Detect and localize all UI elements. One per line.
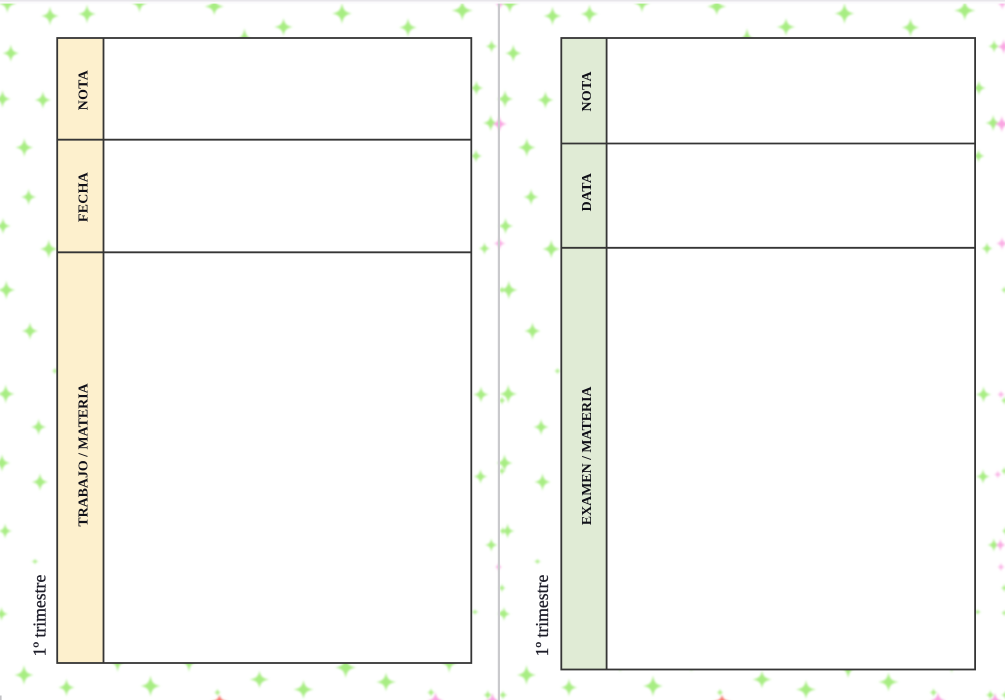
- svg-text:DATA: DATA: [580, 173, 595, 212]
- svg-text:1º trimestre: 1º trimestre: [29, 575, 49, 657]
- svg-text:FECHA: FECHA: [77, 172, 92, 222]
- svg-text:EXAMEN / MATERIA: EXAMEN / MATERIA: [580, 386, 595, 525]
- svg-text:NOTA: NOTA: [77, 70, 92, 110]
- svg-text:TRABAJO / MATERIA: TRABAJO / MATERIA: [77, 383, 92, 526]
- svg-text:1º trimestre: 1º trimestre: [532, 575, 552, 657]
- svg-text:NOTA: NOTA: [580, 71, 595, 111]
